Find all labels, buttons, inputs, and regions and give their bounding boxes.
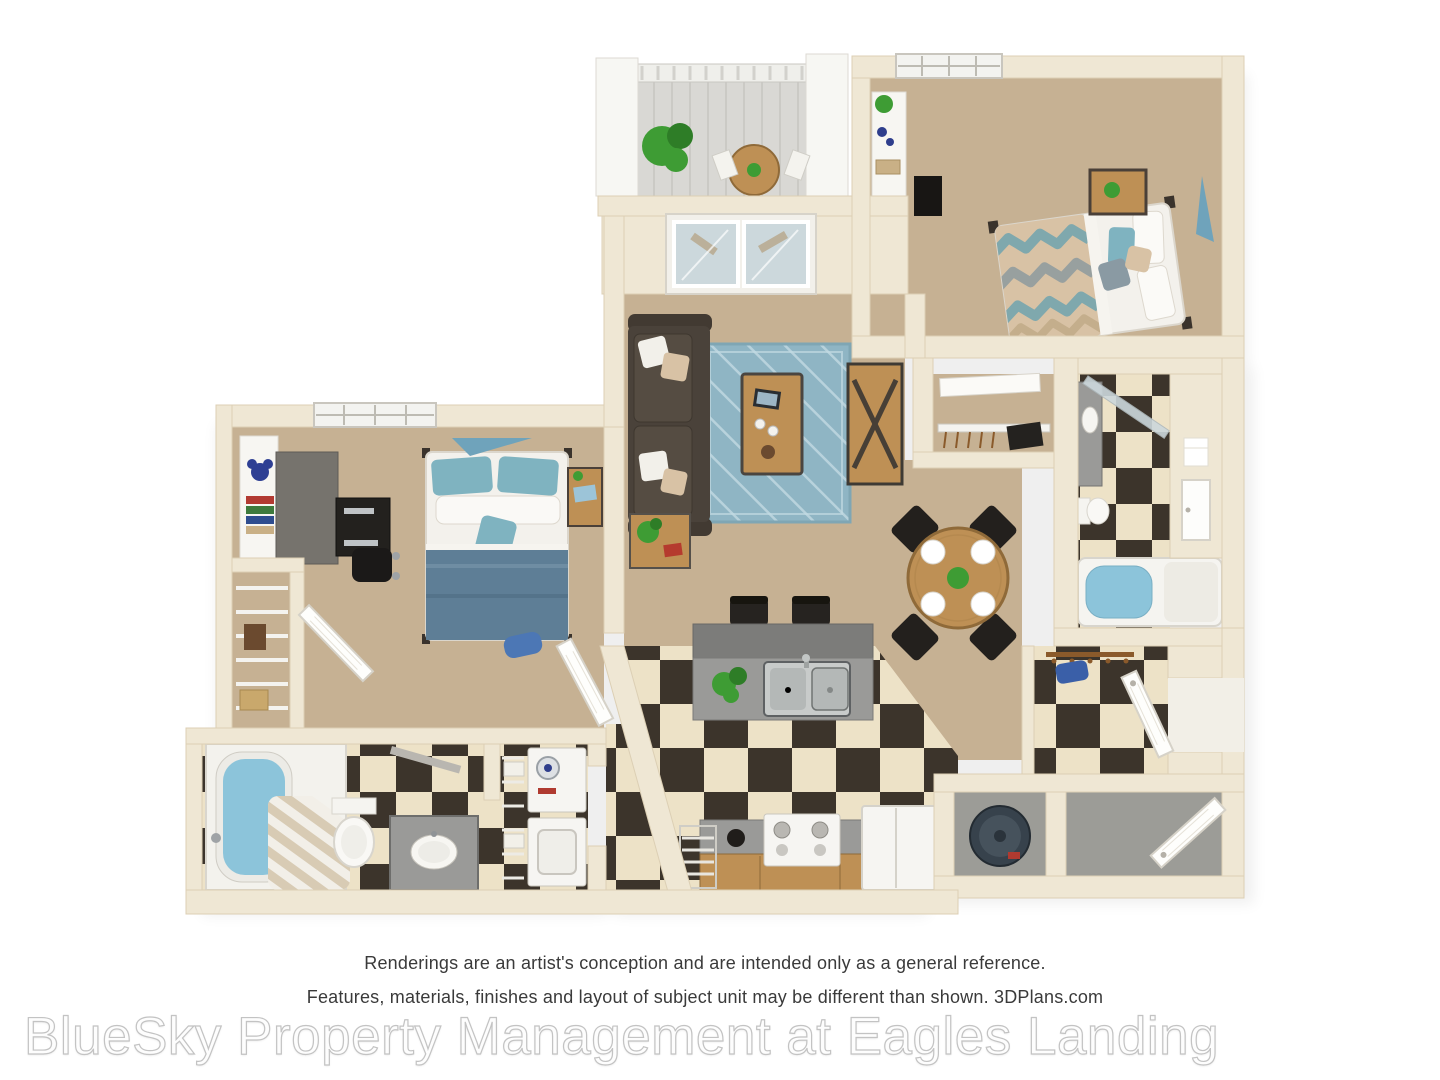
dryer <box>528 818 586 886</box>
bath1-vanity <box>390 816 478 890</box>
bedroom2-window <box>314 403 436 427</box>
dining-table <box>908 528 1008 628</box>
balcony-column-right <box>806 54 848 196</box>
bed2-pillow-teal <box>431 456 493 496</box>
bedroom2-nightstand <box>568 468 602 526</box>
bedroom2-shelf <box>240 436 278 562</box>
floor-plan-page: Renderings are an artist's conception an… <box>0 0 1440 1080</box>
bath2-linen-door <box>1182 438 1210 540</box>
place-setting <box>971 592 995 616</box>
laundry-basket <box>504 834 524 848</box>
hanging-clothes <box>1006 422 1043 450</box>
coat-rack <box>1046 652 1134 657</box>
disclaimer-line-2: Features, materials, finishes and layout… <box>0 987 1410 1008</box>
disclaimer-line-1: Renderings are an artist's conception an… <box>0 953 1410 974</box>
bath1-toilet <box>332 798 376 867</box>
bedroom1-window <box>896 54 1002 78</box>
place-setting <box>921 540 945 564</box>
floor-plan-rendering <box>0 0 1440 1080</box>
balcony-column-left <box>596 58 638 196</box>
desk-chair <box>352 548 392 582</box>
bedroom1-dresser <box>872 92 906 202</box>
bedroom1-nightstand <box>1090 170 1146 214</box>
sofa-pillow <box>660 352 690 382</box>
bath2-tub <box>1078 558 1222 626</box>
sofa <box>628 314 712 536</box>
media-console <box>848 364 902 484</box>
bath2-toilet <box>1078 498 1109 524</box>
bedroom2-counter <box>276 452 338 564</box>
double-sink <box>764 654 850 716</box>
sliding-glass-doors <box>666 214 816 294</box>
utility-closet <box>970 806 1030 866</box>
bed1-pillow-pattern <box>1124 245 1152 273</box>
place-setting <box>971 540 995 564</box>
towel <box>1184 438 1208 466</box>
sofa-pillow <box>660 468 688 496</box>
range-stove <box>764 814 840 866</box>
bed2-pillow-teal <box>497 456 559 496</box>
place-setting <box>921 592 945 616</box>
closet-box <box>240 690 268 710</box>
kitchen-island <box>693 624 873 720</box>
coffee-table <box>742 374 802 474</box>
shower-head <box>211 833 221 843</box>
bedroom2-bed <box>422 448 572 644</box>
kettle <box>727 829 745 847</box>
washer <box>528 748 586 812</box>
books <box>246 496 274 504</box>
watermark: BlueSky Property Management at Eagles La… <box>24 1006 1219 1067</box>
centerpiece-plant <box>947 567 969 589</box>
laundry-basket <box>504 762 524 776</box>
bedroom1-tv <box>914 176 942 216</box>
end-table <box>630 514 690 568</box>
closet-item <box>244 624 266 650</box>
laptop <box>573 485 597 503</box>
bath2-vanity <box>1078 382 1102 486</box>
